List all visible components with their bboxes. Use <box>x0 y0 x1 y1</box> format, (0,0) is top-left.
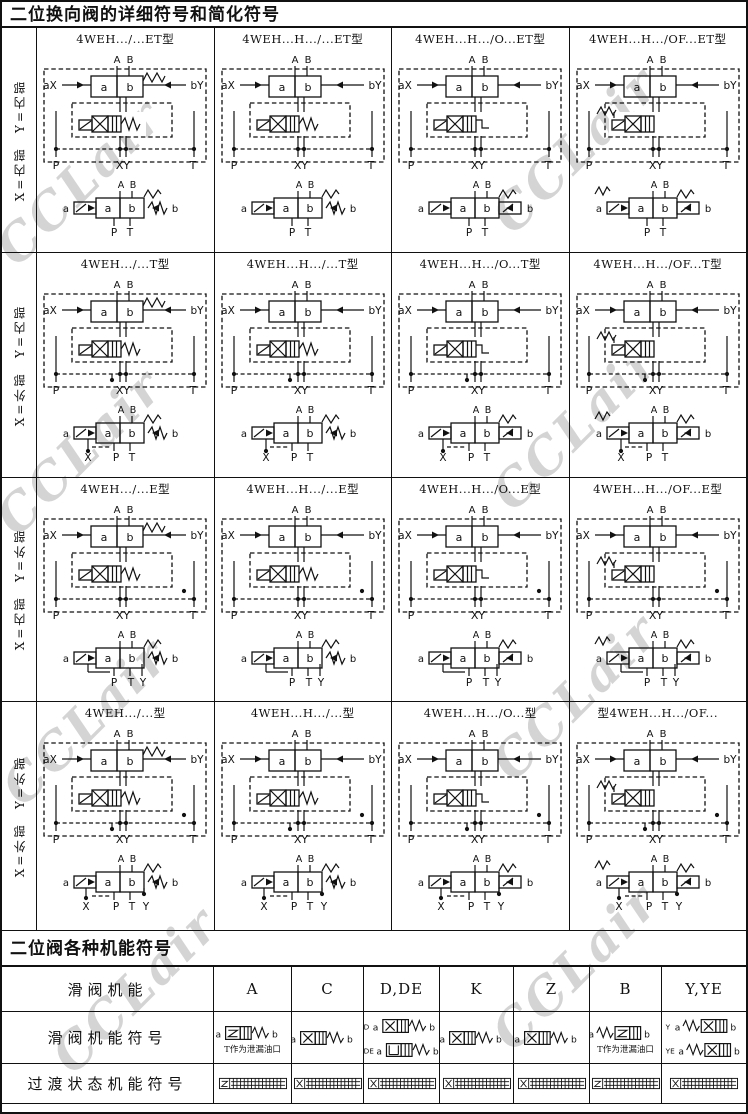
svg-text:a: a <box>372 1023 378 1033</box>
svg-text:b: b <box>482 81 489 94</box>
svg-text:b: b <box>127 531 134 544</box>
svg-text:a: a <box>633 531 640 544</box>
svg-text:B: B <box>130 405 137 416</box>
svg-text:b: b <box>304 531 311 544</box>
row-label-text: X=内部 Y=内部 <box>11 79 28 201</box>
svg-text:B: B <box>307 405 314 416</box>
svg-text:B: B <box>482 280 489 291</box>
svg-text:A: A <box>114 729 121 740</box>
spool-function-symbol: ab <box>213 1021 291 1045</box>
transition-symbol-cell <box>513 1064 589 1104</box>
svg-text:Y: Y <box>317 677 325 689</box>
svg-text:b: b <box>484 202 491 215</box>
valve-cell: 4WEH...H.../...型ABabaXbYPXYTABababXPTY <box>214 702 392 931</box>
valve-symbol-diagram: ABabaXbYPXYTABababXPTY <box>391 722 568 920</box>
svg-text:T: T <box>544 833 552 846</box>
svg-text:bY: bY <box>723 305 737 317</box>
spool-function-symbol: DEab <box>363 1038 439 1062</box>
svg-text:P: P <box>646 452 652 464</box>
svg-text:b: b <box>484 652 491 665</box>
svg-text:P: P <box>644 227 650 239</box>
svg-text:A: A <box>291 505 298 516</box>
svg-text:bY: bY <box>546 305 560 317</box>
spool-function-symbol: ab <box>291 1026 363 1050</box>
svg-text:B: B <box>307 630 314 641</box>
svg-text:a: a <box>589 1030 594 1040</box>
svg-text:A: A <box>473 180 480 191</box>
transition-state-symbol <box>218 1075 288 1092</box>
function-symbol-cell: abT作为泄漏油口 <box>213 1012 291 1064</box>
svg-text:bY: bY <box>723 754 737 766</box>
transition-row-header: 过渡状态机能符号 <box>2 1064 213 1104</box>
svg-text:a: a <box>101 755 108 768</box>
svg-text:a: a <box>596 878 602 889</box>
svg-text:a: a <box>278 306 285 319</box>
function-column-label: D,DE <box>380 980 423 998</box>
valve-type-header: 4WEH...H.../OF...ET型 <box>589 30 727 48</box>
svg-text:aX: aX <box>576 305 590 317</box>
svg-text:B: B <box>304 729 311 740</box>
valve-symbol-diagram: ABabaXbYPXYTABababXPT <box>214 273 391 471</box>
function-column-label: Z <box>546 980 557 998</box>
svg-text:T: T <box>189 159 197 172</box>
svg-text:a: a <box>63 878 69 889</box>
svg-text:b: b <box>306 202 313 215</box>
svg-text:X: X <box>262 452 269 464</box>
function-column-label: B <box>619 980 631 998</box>
valve-symbol-diagram: ABabaXbYPXYTABababXPT <box>569 273 746 471</box>
valve-symbol-diagram: ABabaXbYPXYTABababPT <box>214 48 391 246</box>
svg-text:a: a <box>439 1035 445 1045</box>
function-symbols-table: 滑阀机能ACD,DEKZBY,YE滑阀机能符号abT作为泄漏油口abDabDEa… <box>2 967 746 1104</box>
svg-text:T: T <box>189 384 197 397</box>
svg-text:b: b <box>730 1023 736 1033</box>
function-column-label: C <box>321 980 333 998</box>
transition-state-symbol <box>367 1075 437 1092</box>
valve-cell: 4WEH...H.../...E型ABabaXbYPXYTABababPTY <box>214 478 392 702</box>
function-column-label: Y,YE <box>685 980 723 998</box>
svg-text:A: A <box>291 55 298 66</box>
valve-symbol-diagram: ABabaXbYPXYTABababPTY <box>214 498 391 696</box>
valve-symbol-diagram: ABabaXbYPXYTABababXPTY <box>569 722 746 920</box>
transition-row-label: 过渡状态机能符号 <box>27 1073 187 1094</box>
svg-text:Y: Y <box>139 677 147 689</box>
valve-type-header: 型4WEH...H.../OF... <box>598 704 718 722</box>
svg-text:b: b <box>172 204 178 215</box>
svg-text:b: b <box>527 429 533 440</box>
svg-text:T: T <box>721 833 729 846</box>
svg-text:Y: Y <box>665 1022 671 1031</box>
svg-text:A: A <box>469 55 476 66</box>
svg-text:a: a <box>105 652 112 665</box>
svg-text:b: b <box>129 652 136 665</box>
svg-text:aX: aX <box>43 754 57 766</box>
svg-text:P: P <box>466 677 472 689</box>
function-column-header: K <box>439 967 513 1012</box>
svg-text:XY: XY <box>471 833 486 846</box>
svg-text:XY: XY <box>294 159 309 172</box>
svg-text:A: A <box>473 630 480 641</box>
spool-function-symbol: Dab <box>363 1014 439 1038</box>
svg-text:Y: Y <box>142 901 150 913</box>
svg-text:A: A <box>296 180 303 191</box>
svg-text:T: T <box>661 452 669 464</box>
svg-text:aX: aX <box>221 530 235 542</box>
svg-text:b: b <box>350 204 356 215</box>
svg-text:a: a <box>418 878 424 889</box>
svg-text:XY: XY <box>116 833 131 846</box>
function-column-header: Y,YE <box>661 967 746 1012</box>
function-column-label: K <box>470 980 482 998</box>
svg-text:b: b <box>127 755 134 768</box>
svg-text:aX: aX <box>43 530 57 542</box>
svg-text:bY: bY <box>368 754 382 766</box>
svg-text:T: T <box>304 227 312 239</box>
svg-text:a: a <box>596 654 602 665</box>
svg-text:aX: aX <box>398 530 412 542</box>
valve-cell: 4WEH...H.../O...型ABabaXbYPXYTABababXPTY <box>391 702 569 931</box>
svg-text:b: b <box>306 876 313 889</box>
valve-cell: 4WEH...H.../O...T型ABabaXbYPXYTABababXPT <box>391 253 569 478</box>
svg-text:T: T <box>366 609 374 622</box>
svg-text:b: b <box>705 654 711 665</box>
svg-text:bY: bY <box>191 80 205 92</box>
svg-text:b: b <box>306 427 313 440</box>
svg-text:bY: bY <box>368 80 382 92</box>
svg-text:a: a <box>460 427 467 440</box>
svg-text:b: b <box>172 878 178 889</box>
svg-text:T: T <box>483 901 491 913</box>
svg-text:P: P <box>230 384 237 397</box>
svg-text:A: A <box>651 405 658 416</box>
valve-cell: 4WEH...H.../O...E型ABabaXbYPXYTABababPTY <box>391 478 569 702</box>
svg-text:a: a <box>418 654 424 665</box>
valve-cell: 4WEH.../...T型ABabaXbYPXYTABababXPT <box>36 253 214 478</box>
svg-text:P: P <box>289 677 295 689</box>
transition-symbol-cell <box>589 1064 661 1104</box>
svg-text:a: a <box>637 876 644 889</box>
svg-text:b: b <box>306 652 313 665</box>
spool-function-symbol: Yab <box>662 1014 746 1038</box>
svg-text:P: P <box>230 159 237 172</box>
svg-text:A: A <box>296 405 303 416</box>
transition-state-symbol <box>442 1075 512 1092</box>
svg-text:b: b <box>350 878 356 889</box>
detailed-symbols-table: X=内部 Y=内部4WEH.../...ET型ABabaXbYPXYTABaba… <box>2 28 746 931</box>
svg-text:Y: Y <box>497 901 505 913</box>
svg-text:B: B <box>659 280 666 291</box>
svg-text:P: P <box>408 833 415 846</box>
svg-text:B: B <box>304 505 311 516</box>
svg-text:a: a <box>101 81 108 94</box>
svg-text:Y: Y <box>675 901 683 913</box>
svg-text:XY: XY <box>116 159 131 172</box>
svg-text:a: a <box>63 204 69 215</box>
svg-text:A: A <box>118 180 125 191</box>
spool-function-label: 滑阀机能 <box>67 979 147 1000</box>
svg-text:b: b <box>659 306 666 319</box>
svg-text:a: a <box>278 81 285 94</box>
svg-text:b: b <box>127 81 134 94</box>
svg-text:a: a <box>105 202 112 215</box>
svg-text:b: b <box>484 427 491 440</box>
svg-text:B: B <box>127 729 134 740</box>
svg-text:T: T <box>128 452 136 464</box>
svg-text:a: a <box>105 427 112 440</box>
svg-text:b: b <box>527 878 533 889</box>
svg-text:B: B <box>127 55 134 66</box>
svg-text:a: a <box>278 755 285 768</box>
svg-text:b: b <box>129 427 136 440</box>
svg-text:P: P <box>468 901 474 913</box>
svg-text:T: T <box>721 609 729 622</box>
valve-type-header: 4WEH...H.../OF...T型 <box>593 255 722 273</box>
svg-text:A: A <box>296 854 303 865</box>
svg-text:A: A <box>469 729 476 740</box>
svg-text:b: b <box>482 531 489 544</box>
svg-text:aX: aX <box>221 754 235 766</box>
symbol-row-label: 滑阀机能符号 <box>47 1027 167 1048</box>
svg-text:A: A <box>473 854 480 865</box>
svg-text:aX: aX <box>576 80 590 92</box>
function-column-header: D,DE <box>363 967 439 1012</box>
spool-function-symbol: ab <box>589 1021 661 1045</box>
svg-text:XY: XY <box>116 384 131 397</box>
function-symbol-cell: ab <box>439 1012 513 1064</box>
svg-text:a: a <box>456 81 463 94</box>
svg-text:P: P <box>230 609 237 622</box>
svg-text:XY: XY <box>471 609 486 622</box>
svg-text:a: a <box>418 429 424 440</box>
svg-text:A: A <box>114 505 121 516</box>
transition-state-symbol <box>293 1075 363 1092</box>
svg-text:X: X <box>83 901 90 913</box>
valve-cell: 4WEH.../...ET型ABabaXbYPXYTABababPT <box>36 28 214 253</box>
svg-text:X: X <box>440 452 447 464</box>
svg-text:a: a <box>215 1030 221 1040</box>
svg-text:aX: aX <box>398 754 412 766</box>
svg-text:B: B <box>659 505 666 516</box>
svg-text:P: P <box>408 609 415 622</box>
svg-text:a: a <box>282 427 289 440</box>
svg-text:A: A <box>114 280 121 291</box>
svg-text:a: a <box>460 652 467 665</box>
svg-text:T: T <box>189 609 197 622</box>
valve-type-header: 4WEH.../...E型 <box>80 480 170 498</box>
svg-text:b: b <box>127 306 134 319</box>
valve-type-header: 4WEH.../...T型 <box>81 255 170 273</box>
svg-text:b: b <box>482 306 489 319</box>
svg-text:A: A <box>118 854 125 865</box>
svg-text:b: b <box>129 876 136 889</box>
svg-text:aX: aX <box>398 80 412 92</box>
svg-text:a: a <box>278 531 285 544</box>
svg-text:X: X <box>617 452 624 464</box>
function-symbol-cell: ab <box>291 1012 363 1064</box>
svg-text:P: P <box>646 901 652 913</box>
svg-text:b: b <box>734 1047 740 1057</box>
svg-text:a: a <box>596 204 602 215</box>
svg-text:b: b <box>705 204 711 215</box>
svg-text:b: b <box>527 654 533 665</box>
valve-symbol-diagram: ABabaXbYPXYTABababPT <box>36 48 213 246</box>
spool-function-header: 滑阀机能 <box>2 967 213 1012</box>
svg-text:B: B <box>130 854 137 865</box>
valve-symbol-diagram: ABabaXbYPXYTABababPT <box>391 48 568 246</box>
svg-text:a: a <box>282 652 289 665</box>
function-column-label: A <box>247 980 259 998</box>
svg-text:a: a <box>633 81 640 94</box>
svg-text:T: T <box>366 384 374 397</box>
row-label-text: X=外部 Y=内部 <box>11 304 28 426</box>
svg-text:Y: Y <box>672 677 680 689</box>
svg-text:T: T <box>544 384 552 397</box>
row-label-text: X=内部 Y=外部 <box>11 528 28 650</box>
svg-text:A: A <box>291 729 298 740</box>
svg-text:T: T <box>189 833 197 846</box>
svg-text:T: T <box>127 677 135 689</box>
svg-text:P: P <box>53 384 60 397</box>
valve-symbol-diagram: ABabaXbYPXYTABababXPT <box>36 273 213 471</box>
svg-text:YE: YE <box>665 1046 675 1055</box>
row-label: X=外部 Y=内部 <box>2 253 36 478</box>
function-column-header: B <box>589 967 661 1012</box>
svg-text:A: A <box>114 55 121 66</box>
transition-state-symbol <box>517 1075 587 1092</box>
svg-text:b: b <box>172 429 178 440</box>
svg-text:DE: DE <box>363 1046 374 1055</box>
transition-state-symbol <box>591 1075 661 1092</box>
svg-text:b: b <box>496 1035 502 1045</box>
svg-text:B: B <box>127 280 134 291</box>
svg-text:aX: aX <box>576 530 590 542</box>
svg-text:a: a <box>63 429 69 440</box>
svg-text:P: P <box>408 384 415 397</box>
transition-symbol-cell <box>661 1064 746 1104</box>
svg-text:B: B <box>304 280 311 291</box>
svg-text:b: b <box>432 1047 438 1057</box>
valve-cell: 4WEH...H.../...T型ABabaXbYPXYTABababXPT <box>214 253 392 478</box>
svg-text:B: B <box>127 505 134 516</box>
svg-text:a: a <box>633 306 640 319</box>
transition-symbol-cell <box>213 1064 291 1104</box>
leak-port-note: T作为泄漏油口 <box>597 1043 654 1055</box>
svg-text:bY: bY <box>723 80 737 92</box>
valve-symbol-diagram: ABabaXbYPXYTABababXPTY <box>214 722 391 920</box>
spool-function-symbol: YEab <box>662 1038 746 1062</box>
svg-text:b: b <box>484 876 491 889</box>
svg-text:A: A <box>646 55 653 66</box>
svg-text:P: P <box>53 833 60 846</box>
valve-symbol-diagram: ABabaXbYPXYTABababPTY <box>391 498 568 696</box>
svg-text:a: a <box>63 654 69 665</box>
valve-type-header: 4WEH...H.../O...型 <box>424 704 537 722</box>
svg-text:b: b <box>350 429 356 440</box>
svg-text:a: a <box>456 306 463 319</box>
valve-cell: 4WEH.../...E型ABabaXbYPXYTABababPTY <box>36 478 214 702</box>
svg-text:X: X <box>438 901 445 913</box>
svg-text:B: B <box>662 405 669 416</box>
svg-text:P: P <box>408 159 415 172</box>
svg-text:T: T <box>721 159 729 172</box>
svg-text:a: a <box>633 755 640 768</box>
svg-text:T: T <box>128 901 136 913</box>
svg-text:a: a <box>282 876 289 889</box>
transition-symbol-cell <box>363 1064 439 1104</box>
svg-text:T: T <box>305 677 313 689</box>
valve-cell: 4WEH...H.../...ET型ABabaXbYPXYTABababPT <box>214 28 392 253</box>
svg-text:P: P <box>289 227 295 239</box>
valve-type-header: 4WEH...H.../O...T型 <box>420 255 541 273</box>
function-column-header: A <box>213 967 291 1012</box>
svg-text:P: P <box>291 452 297 464</box>
svg-text:a: a <box>282 202 289 215</box>
valve-type-header: 4WEH...H.../...ET型 <box>242 30 363 48</box>
valve-type-header: 4WEH...H.../...T型 <box>247 255 359 273</box>
row-label: X=内部 Y=内部 <box>2 28 36 253</box>
row-label: X=内部 Y=外部 <box>2 478 36 702</box>
svg-text:XY: XY <box>471 384 486 397</box>
svg-text:XY: XY <box>649 833 664 846</box>
valve-cell: 4WEH...H.../O...ET型ABabaXbYPXYTABababPT <box>391 28 569 253</box>
svg-text:b: b <box>429 1023 435 1033</box>
svg-text:XY: XY <box>116 609 131 622</box>
svg-text:b: b <box>661 427 668 440</box>
svg-text:XY: XY <box>471 159 486 172</box>
svg-text:B: B <box>307 854 314 865</box>
svg-text:B: B <box>659 729 666 740</box>
svg-text:a: a <box>241 429 247 440</box>
svg-text:B: B <box>482 505 489 516</box>
svg-text:bY: bY <box>191 754 205 766</box>
svg-text:A: A <box>646 505 653 516</box>
svg-text:a: a <box>241 654 247 665</box>
svg-text:aX: aX <box>398 305 412 317</box>
function-symbol-cell: YabYEab <box>661 1012 746 1064</box>
valve-cell: 型4WEH...H.../OF...ABabaXbYPXYTABababXPTY <box>569 702 747 931</box>
valve-cell: 4WEH...H.../OF...ET型ABabaXbYPXYTABababPT <box>569 28 747 253</box>
valve-type-header: 4WEH...H.../O...E型 <box>419 480 541 498</box>
transition-symbol-cell <box>291 1064 363 1104</box>
svg-text:T: T <box>126 227 134 239</box>
svg-text:B: B <box>662 630 669 641</box>
svg-text:a: a <box>291 1035 296 1045</box>
svg-text:T: T <box>544 159 552 172</box>
svg-text:b: b <box>571 1035 577 1045</box>
svg-text:a: a <box>514 1035 520 1045</box>
row-label: X=外部 Y=外部 <box>2 702 36 931</box>
svg-text:b: b <box>272 1030 278 1040</box>
svg-text:XY: XY <box>649 609 664 622</box>
row-label-text: X=外部 Y=外部 <box>11 755 28 877</box>
svg-text:T: T <box>306 901 314 913</box>
svg-text:P: P <box>111 227 117 239</box>
svg-text:aX: aX <box>221 305 235 317</box>
svg-text:a: a <box>678 1047 684 1057</box>
valve-symbol-diagram: ABabaXbYPXYTABababXPTY <box>36 722 213 920</box>
valve-symbol-diagram: ABabaXbYPXYTABababPTY <box>36 498 213 696</box>
svg-text:B: B <box>662 854 669 865</box>
svg-text:A: A <box>651 630 658 641</box>
svg-text:T: T <box>483 452 491 464</box>
svg-text:a: a <box>418 204 424 215</box>
svg-text:D: D <box>363 1022 369 1031</box>
svg-text:P: P <box>466 227 472 239</box>
svg-text:P: P <box>53 159 60 172</box>
svg-text:a: a <box>596 429 602 440</box>
svg-text:a: a <box>460 876 467 889</box>
svg-text:b: b <box>527 204 533 215</box>
